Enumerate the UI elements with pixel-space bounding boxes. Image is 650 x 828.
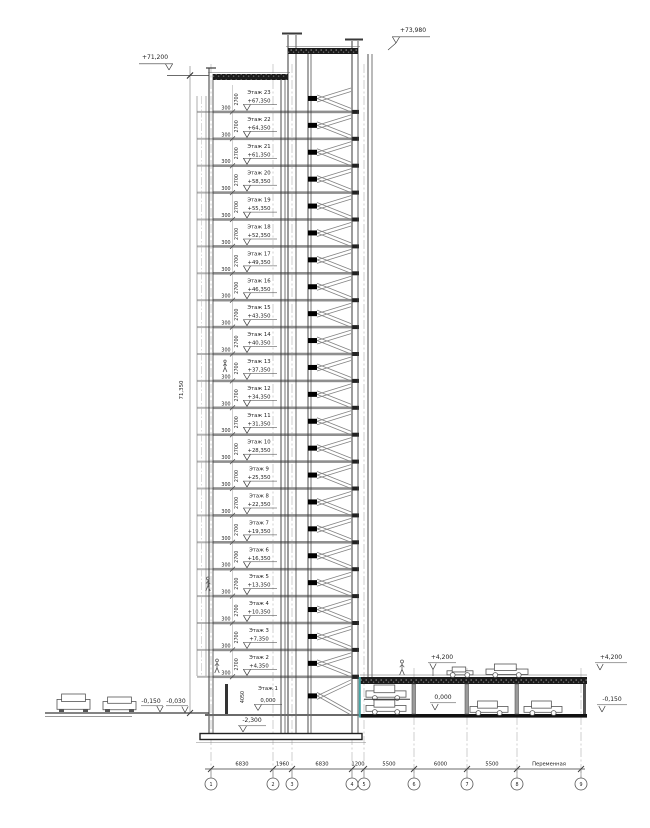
dim-300: 300 [221, 428, 230, 434]
bottom-dim-label: 5500 [485, 762, 498, 768]
dim-4050: 4050 [240, 691, 246, 703]
bottom-dimensions: 1234567896830196068301200550060005500Пер… [205, 762, 587, 791]
dim-2700: 2700 [234, 658, 240, 670]
dim-total-height: 71,350 [179, 380, 185, 399]
floor-elevation: +19,350 [248, 529, 272, 535]
bottom-dim-label: 1960 [276, 762, 289, 768]
axis-number: 1 [209, 782, 212, 788]
floor-label: Этаж 19 [247, 198, 270, 204]
floor-elevation: +13,350 [248, 583, 272, 589]
elevation-mark-basement: -2,300 [237, 717, 267, 724]
dim-2700: 2700 [234, 335, 240, 347]
dim-300: 300 [221, 213, 230, 219]
roof-hatch [208, 47, 360, 81]
elevation-mark-right-roof: +4,200 [595, 654, 627, 661]
dim-300: 300 [221, 374, 230, 380]
floor-label: Этаж 6 [249, 547, 269, 553]
floor-elevation: +58,350 [248, 179, 272, 185]
floor-elevation: +7,350 [249, 637, 269, 643]
floor-label: Этаж 17 [247, 251, 270, 257]
floor-label: Этаж 12 [247, 386, 270, 392]
floor-elevation: +4,350 [249, 663, 269, 669]
floor-elevation: +31,350 [248, 421, 272, 427]
dim-300: 300 [221, 670, 230, 676]
floor-elevation: +64,350 [248, 125, 272, 131]
axis-number: 4 [350, 782, 353, 788]
bottom-dim-label: 1200 [351, 762, 364, 768]
dim-300: 300 [221, 132, 230, 138]
floor-elevation: +43,350 [248, 314, 272, 320]
dim-300: 300 [221, 321, 230, 327]
floor-label: Этаж 9 [249, 467, 269, 473]
stair-flights [308, 88, 351, 715]
elevation-mark-ground-left-2: -0,030 [164, 698, 188, 705]
floor-elevation: +61,350 [248, 152, 272, 158]
floor-label: Этаж 3 [249, 628, 269, 634]
floor-label: Этаж 22 [247, 117, 270, 123]
elevation-mark-right-ground: -0,150 [596, 696, 628, 703]
dim-300: 300 [221, 105, 230, 111]
dim-300: 300 [221, 617, 230, 623]
dim-300: 300 [221, 159, 230, 165]
elevation-mark-parking-floor: 0,000 [430, 694, 456, 701]
floor-elevation: +67,350 [248, 99, 272, 105]
elevation-mark-ground-left-1: -0,150 [139, 698, 163, 705]
floor-label: Этаж 10 [247, 440, 271, 446]
floor-elevation: +10,350 [248, 610, 272, 616]
dim-2700: 2700 [234, 416, 240, 428]
dim-300: 300 [221, 536, 230, 542]
floor-elevation: +55,350 [248, 206, 272, 212]
floor-elevation: +46,350 [248, 287, 272, 293]
floor-label: Этаж 5 [249, 574, 269, 580]
dim-300: 300 [221, 455, 230, 461]
floor-elevation: +49,350 [248, 260, 272, 266]
floor-label: Этаж 13 [247, 359, 270, 365]
dim-2700: 2700 [234, 120, 240, 132]
bottom-dim-label: 6000 [434, 762, 447, 768]
floor-elevation: +28,350 [248, 448, 272, 454]
dim-2700: 2700 [234, 228, 240, 240]
bottom-dim-label: 6830 [235, 762, 248, 768]
dim-300: 300 [221, 294, 230, 300]
floor-label: Этаж 20 [247, 171, 271, 177]
bottom-dim-label: 6830 [315, 762, 328, 768]
floor-label: Этаж 18 [247, 225, 271, 231]
floor-label: Этаж 14 [247, 332, 271, 338]
section-linework: Этаж 23+67,3503002700Этаж 22+64,35030027… [0, 0, 650, 828]
floor-label: Этаж 2 [249, 655, 269, 661]
dim-2700: 2700 [234, 631, 240, 643]
dim-2700: 2700 [234, 497, 240, 509]
dim-300: 300 [221, 643, 230, 649]
dim-300: 300 [221, 482, 230, 488]
floor-label: Этаж 4 [249, 601, 269, 607]
floor-elevation: +16,350 [248, 556, 272, 562]
dim-300: 300 [221, 563, 230, 569]
dim-2700: 2700 [234, 282, 240, 294]
elevation-mark-stair-roof: +73,980 [394, 27, 432, 34]
dim-2700: 2700 [234, 443, 240, 455]
floor-elevation: +37,350 [248, 368, 272, 374]
axis-number: 2 [271, 782, 274, 788]
axis-number: 5 [362, 782, 365, 788]
floor-elevation: +22,350 [248, 502, 272, 508]
floor-label: Этаж 23 [247, 90, 270, 96]
elevation-mark-parking-roof: +4,200 [428, 654, 456, 661]
dim-300: 300 [221, 590, 230, 596]
dim-2700: 2700 [234, 551, 240, 563]
dim-300: 300 [221, 509, 230, 515]
dim-2700: 2700 [234, 174, 240, 186]
axis-number: 7 [465, 782, 468, 788]
axis-number: 9 [579, 782, 582, 788]
floor-label: Этаж 21 [247, 144, 270, 150]
dim-300: 300 [221, 186, 230, 192]
axis-number: 3 [290, 782, 293, 788]
architectural-section-canvas: Этаж 23+67,3503002700Этаж 22+64,35030027… [0, 0, 650, 828]
dim-2700: 2700 [234, 389, 240, 401]
dim-2700: 2700 [234, 309, 240, 321]
dim-2700: 2700 [234, 93, 240, 105]
floor-label: Этаж 1 [258, 686, 278, 692]
floor-elevation: +52,350 [248, 233, 272, 239]
dim-2700: 2700 [234, 255, 240, 267]
dim-300: 300 [221, 267, 230, 273]
axis-number: 8 [515, 782, 518, 788]
dim-2700: 2700 [234, 201, 240, 213]
bottom-dim-label: Переменная [532, 762, 566, 768]
axis-number: 6 [412, 782, 415, 788]
dim-2700: 2700 [234, 147, 240, 159]
dim-2700: 2700 [234, 524, 240, 536]
floor-label: Этаж 15 [247, 305, 270, 311]
dim-300: 300 [221, 240, 230, 246]
floor-elevation: +40,350 [248, 341, 272, 347]
elevation-mark-roof-left: +71,200 [136, 54, 174, 61]
floor-label: Этаж 16 [247, 278, 271, 284]
floor-elevation: 0,000 [260, 698, 276, 704]
dim-300: 300 [221, 401, 230, 407]
floor-label: Этаж 7 [249, 520, 269, 526]
dim-2700: 2700 [234, 470, 240, 482]
dim-2700: 2700 [234, 604, 240, 616]
dim-2700: 2700 [234, 362, 240, 374]
floor-label: Этаж 11 [247, 413, 270, 419]
dim-300: 300 [221, 348, 230, 354]
floor-elevation: +34,350 [248, 394, 272, 400]
bottom-dim-label: 5500 [382, 762, 395, 768]
dim-2700: 2700 [234, 578, 240, 590]
floor-label: Этаж 8 [249, 494, 269, 500]
cars [57, 664, 562, 715]
floor-elevation: +25,350 [248, 475, 272, 481]
